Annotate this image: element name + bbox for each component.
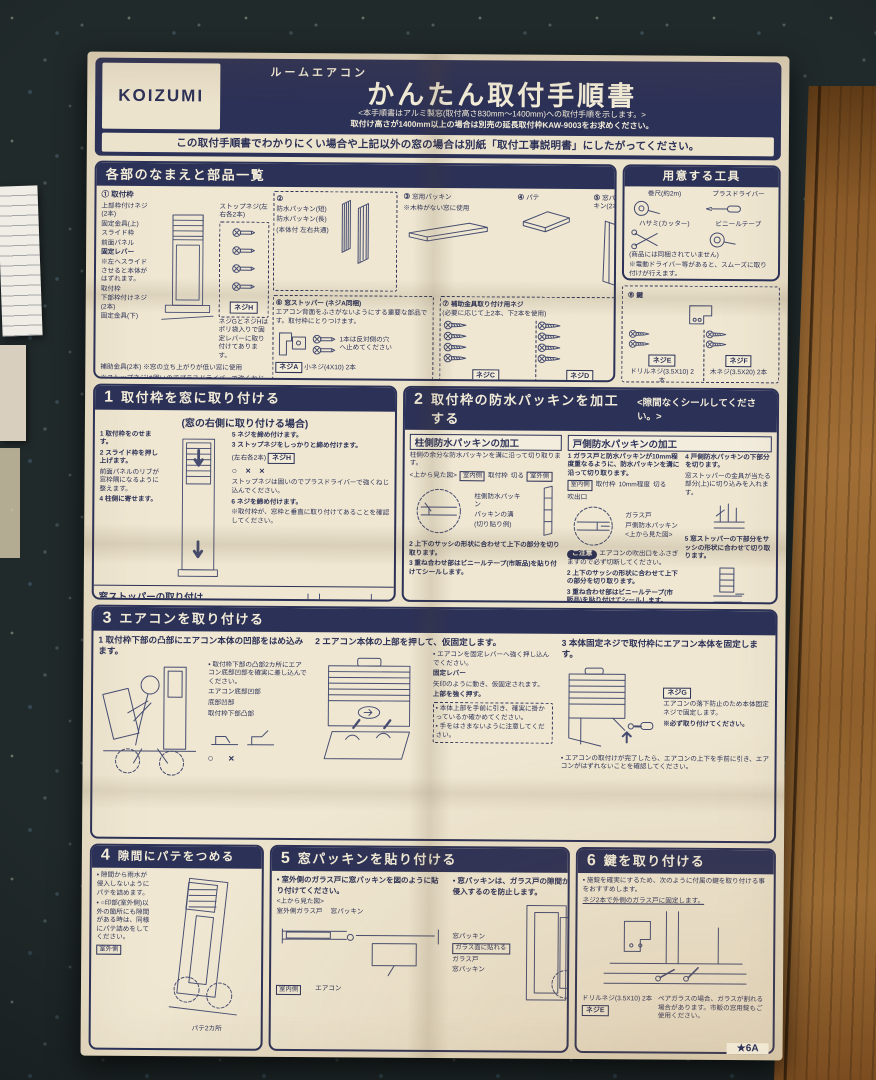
tools-note: ※電動ドライバー等があると、スムーズに取り付けが行えます。 xyxy=(629,262,773,280)
screwdriver-icon xyxy=(703,199,743,219)
screw-tag-c: ネジC xyxy=(472,369,499,381)
section4-title: 隙間にパテをつめる xyxy=(118,848,235,865)
parts-title: 各部のなまえと部品一覧 xyxy=(106,163,266,183)
instruction-sheet: KOIZUMI ルームエアコン かんたん取付手順書 <本手順書はアルミ製窓(取付… xyxy=(81,52,790,1061)
section-6: 6鍵を取り付ける • 施錠を確実にするため、次のように付属の鍵を取り付ける事をお… xyxy=(575,847,776,1054)
part1-note: ※左へスライドさせると本体がはずれます。 xyxy=(101,259,153,285)
screw-icon xyxy=(704,330,728,339)
hook-detail-diagram xyxy=(208,721,280,752)
header: KOIZUMI ルームエアコン かんたん取付手順書 <本手順書はアルミ製窓(取付… xyxy=(95,58,782,160)
part1-label: 上部枠付けネジ(2本) xyxy=(101,202,153,219)
screw-icon xyxy=(312,345,336,355)
screw-icon xyxy=(232,245,256,255)
section1-title: 取付枠を窓に取り付ける xyxy=(121,386,281,406)
part-3: ③ 窓用パッキン ※木枠がない窓に使用 xyxy=(403,191,512,292)
parts-tools-row: 各部のなまえと部品一覧 ① 取付枠 上部枠付けネジ(2本) 固定金具(上) スラ… xyxy=(93,160,781,383)
screw-icon xyxy=(704,340,728,349)
door-side-heading: 戸側防水パッキンの加工 xyxy=(568,434,772,451)
window-seal-diagram xyxy=(593,215,617,293)
glass-door-seal-diagram xyxy=(514,899,570,1009)
section5-title: 窓パッキンを貼り付ける xyxy=(298,848,457,868)
screw-tag-g: ネジG xyxy=(663,688,691,699)
part1-label: スライド枠 xyxy=(101,230,153,239)
ok-ng-marks: ○ × × xyxy=(232,465,390,478)
screw-icon xyxy=(536,320,562,330)
part-6: ⑥ 窓ストッパー (ネジA同梱) エアコン背面をふさがないようにする重要な部品で… xyxy=(272,295,433,382)
part1-label: 前面パネル xyxy=(101,240,153,249)
part-5: ⑤ 窓パッキン(2本) xyxy=(593,193,617,293)
pillar-side-heading: 柱側防水パッキンの加工 xyxy=(410,433,562,450)
ac-push-diagram xyxy=(314,650,427,771)
door-packing-plan-diagram xyxy=(567,504,619,548)
section-2: 2取付枠の防水パッキンを加工する<隙間なくシールしてください。> 柱側防水パッキ… xyxy=(402,385,779,604)
stopper-title: 窓ストッパーの取り付け xyxy=(99,588,289,601)
part-7: ⑦ 補助金具取り付け用ネジ (必要に応じて上2本、下2本を使用) ネジC xyxy=(439,296,617,382)
window-plan-diagram xyxy=(276,919,444,984)
screw-icon xyxy=(232,263,256,273)
pillar-packing-plan-diagram xyxy=(409,485,468,537)
scissors-icon xyxy=(629,229,665,249)
section6-title: 鍵を取り付ける xyxy=(604,851,706,871)
photo-scene: KOIZUMI ルームエアコン かんたん取付手順書 <本手順書はアルミ製窓(取付… xyxy=(0,0,876,1080)
sheet-code: ★6A xyxy=(727,1043,769,1054)
part1-label: 取付枠 xyxy=(101,285,153,294)
screw-icon xyxy=(442,353,468,363)
part1-label: 固定レバー xyxy=(101,249,153,258)
screw-h-box: ネジH xyxy=(219,221,270,317)
section2-title: 取付枠の防水パッキンを加工する xyxy=(431,388,629,427)
frame-install-diagram xyxy=(169,431,226,581)
part1-note: ※ストップネジは固いのでプラスドライバーで強くねじ込んでください。 xyxy=(100,375,268,382)
part-1: ① 取付枠 上部枠付けネジ(2本) 固定金具(上) スライド枠 前面パネル 固定… xyxy=(100,189,269,382)
mounting-frame-diagram xyxy=(155,203,218,331)
paper-scrap xyxy=(0,185,43,336)
right-column: 用意する工具 巻尺(約2m) プラスドライバー xyxy=(621,164,781,383)
screw-icon xyxy=(312,334,336,344)
screw-tag-h: ネジH xyxy=(230,301,257,313)
part1-label: 固定金具(上) xyxy=(101,220,153,229)
screw-icon xyxy=(627,339,651,348)
caution-chip: ご注意 xyxy=(567,550,597,559)
screw-tag-a: ネジA xyxy=(275,362,302,373)
screw-icon xyxy=(536,342,562,352)
screw-tag-d: ネジD xyxy=(566,370,593,382)
section-1: 1取付枠を窓に取り付ける (窓の右側に取り付ける場合) 1 取付枠をのせます。 … xyxy=(92,383,398,601)
window-packing-diagram xyxy=(403,216,493,243)
section-3: 3エアコンを取り付ける 1 取付枠下部の凸部にエアコン本体の凹部をはめ込みます。 xyxy=(90,604,778,844)
paper-scrap xyxy=(0,448,20,558)
part1-label: 下部枠付けネジ(2本) xyxy=(101,295,153,312)
screw-tag-e2: ネジE xyxy=(582,1005,609,1016)
brand-logo: KOIZUMI xyxy=(102,63,220,129)
part-8: ⑧ 鍵 ネジE ドリルネジ(3.5X10) 2本 xyxy=(621,286,780,383)
screw-icon xyxy=(442,331,468,341)
section3-title: エアコンを取り付ける xyxy=(119,607,264,627)
putty-spots-diagram xyxy=(158,872,247,1023)
stopper-install-diagram xyxy=(292,590,384,602)
lock-install-diagram xyxy=(600,907,751,994)
screw-icon xyxy=(232,281,256,291)
stopper-subbox: 窓ストッパーの取り付け 窓ストッパーを取付枠の左側に小ネジで取り付けます。 取付… xyxy=(93,584,394,601)
screw-icon xyxy=(536,331,562,341)
screw-tag-f: ネジF xyxy=(725,355,751,367)
screw-icon xyxy=(442,320,468,330)
vinyl-tape-icon xyxy=(703,230,737,250)
packing-bottom-cut-diagram xyxy=(706,500,750,534)
person-install-diagram xyxy=(97,660,202,781)
tools-note: (商品には同梱されていません) xyxy=(629,251,773,261)
section-5: 5窓パッキンを貼り付ける • 室外側のガラス戸に窓パッキンを図のように貼り付けて… xyxy=(269,845,570,1053)
tools-section: 用意する工具 巻尺(約2m) プラスドライバー xyxy=(622,164,781,282)
screw-tag-e: ネジE xyxy=(649,354,676,366)
screw-icon xyxy=(628,329,652,338)
putty-diagram xyxy=(517,206,573,236)
ac-fix-screw-diagram xyxy=(561,664,658,753)
part1-label: 固定金具(下) xyxy=(101,313,153,322)
stopper-cut-diagram xyxy=(707,564,747,604)
section2-subtitle: <隙間なくシールしてください。> xyxy=(637,394,768,423)
parts-section: 各部のなまえと部品一覧 ① 取付枠 上部枠付けネジ(2本) 固定金具(上) スラ… xyxy=(93,160,617,382)
section-4: 4隙間にパテをつめる • 隙間から雨水が侵入しないようにパテを詰めます。 • ○… xyxy=(89,844,264,1051)
part-2: ② 防水パッキン(短) 防水パッキン(長) (本体付 左右共通) xyxy=(273,190,398,291)
part1-label: ストップネジ(左右各2本) xyxy=(219,203,269,220)
tools-title: 用意する工具 xyxy=(663,167,741,184)
paper-scrap xyxy=(0,345,26,441)
section1-subtitle: (窓の右側に取り付ける場合) xyxy=(100,413,390,430)
window-stopper-diagram xyxy=(275,327,309,361)
screw-icon xyxy=(232,227,256,237)
screw-icon xyxy=(442,342,468,352)
screw-icon xyxy=(536,353,562,363)
tape-measure-icon xyxy=(629,198,663,218)
waterproof-packing-diagram xyxy=(334,194,375,268)
part-4: ④ パテ xyxy=(517,192,588,293)
part1-note: ネジGとネジHはポリ袋入りで固定レバーに取り付けてあります。 xyxy=(218,318,268,361)
cut-example-diagram xyxy=(532,484,562,540)
header-notice: この取付手順書でわかりにくい場合や上記以外の窓の場合は別紙「取付工事説明書」にし… xyxy=(102,132,774,156)
lock-diagram xyxy=(684,303,718,329)
ok-ng-marks: ○ × xyxy=(208,753,307,767)
page-title: かんたん取付手順書 xyxy=(230,80,774,112)
